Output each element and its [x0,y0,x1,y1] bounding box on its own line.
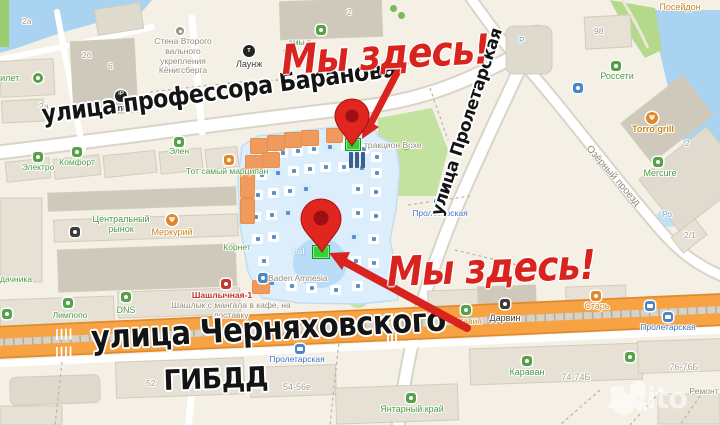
avito-watermark: Avito [608,381,687,415]
avito-logo-icon [608,381,648,415]
green-marker-icon[interactable] [345,138,361,151]
street-label-chernyakhovskogo: улица Черняховского [90,299,447,357]
here-annotation-bottom: Мы здесь! [386,241,596,296]
street-label-ozerny: Озёрный проезд [584,143,643,208]
street-label-gibdd: ГИБДД [163,360,269,397]
green-marker-icon[interactable] [312,245,330,259]
map-canvas[interactable]: тилет2а2б62аIpontЛаунжСтена Второго валь… [0,0,720,425]
